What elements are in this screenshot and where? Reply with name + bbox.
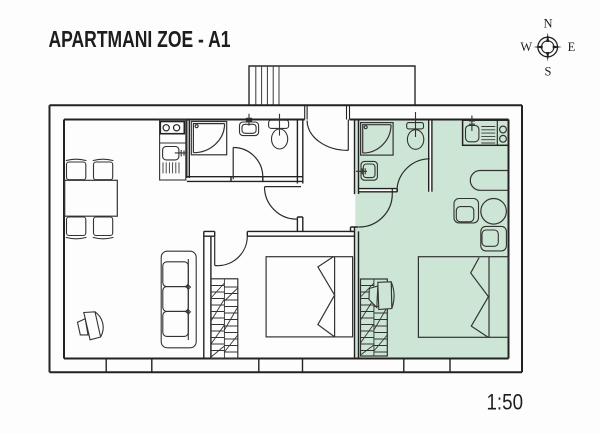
svg-text:E: E: [568, 40, 576, 54]
svg-text:1:50: 1:50: [487, 389, 524, 414]
svg-text:APARTMANI ZOE - A1: APARTMANI ZOE - A1: [49, 26, 231, 52]
svg-text:N: N: [543, 17, 552, 31]
svg-text:W: W: [520, 40, 532, 54]
svg-text:S: S: [545, 65, 552, 79]
